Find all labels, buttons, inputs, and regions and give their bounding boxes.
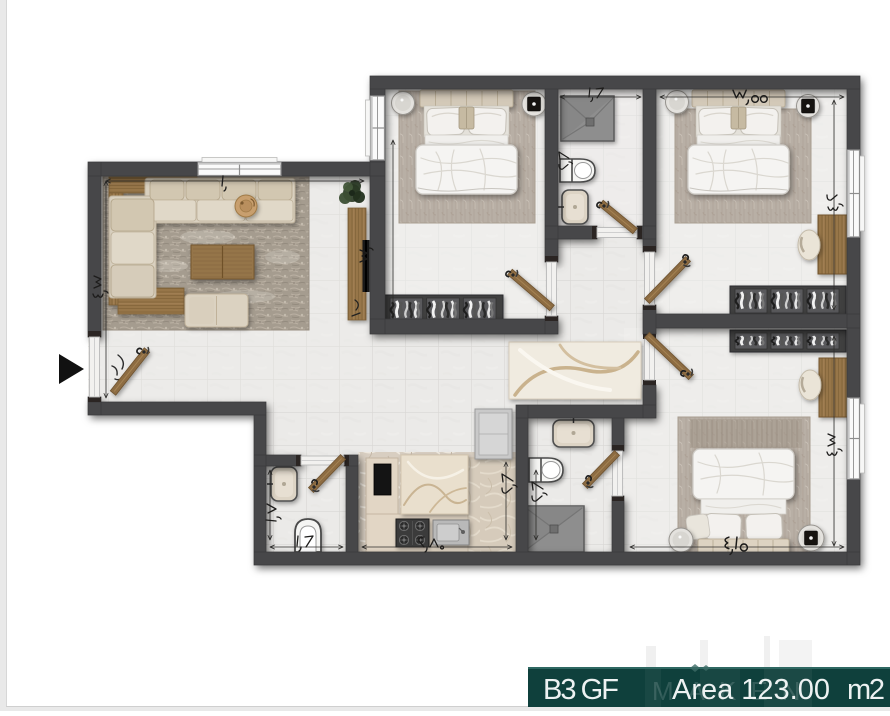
svg-text:B3 GF: B3 GF [543,674,619,706]
svg-text:MAKEN: MAKEN [652,676,814,706]
svg-text:m2: m2 [847,674,885,706]
